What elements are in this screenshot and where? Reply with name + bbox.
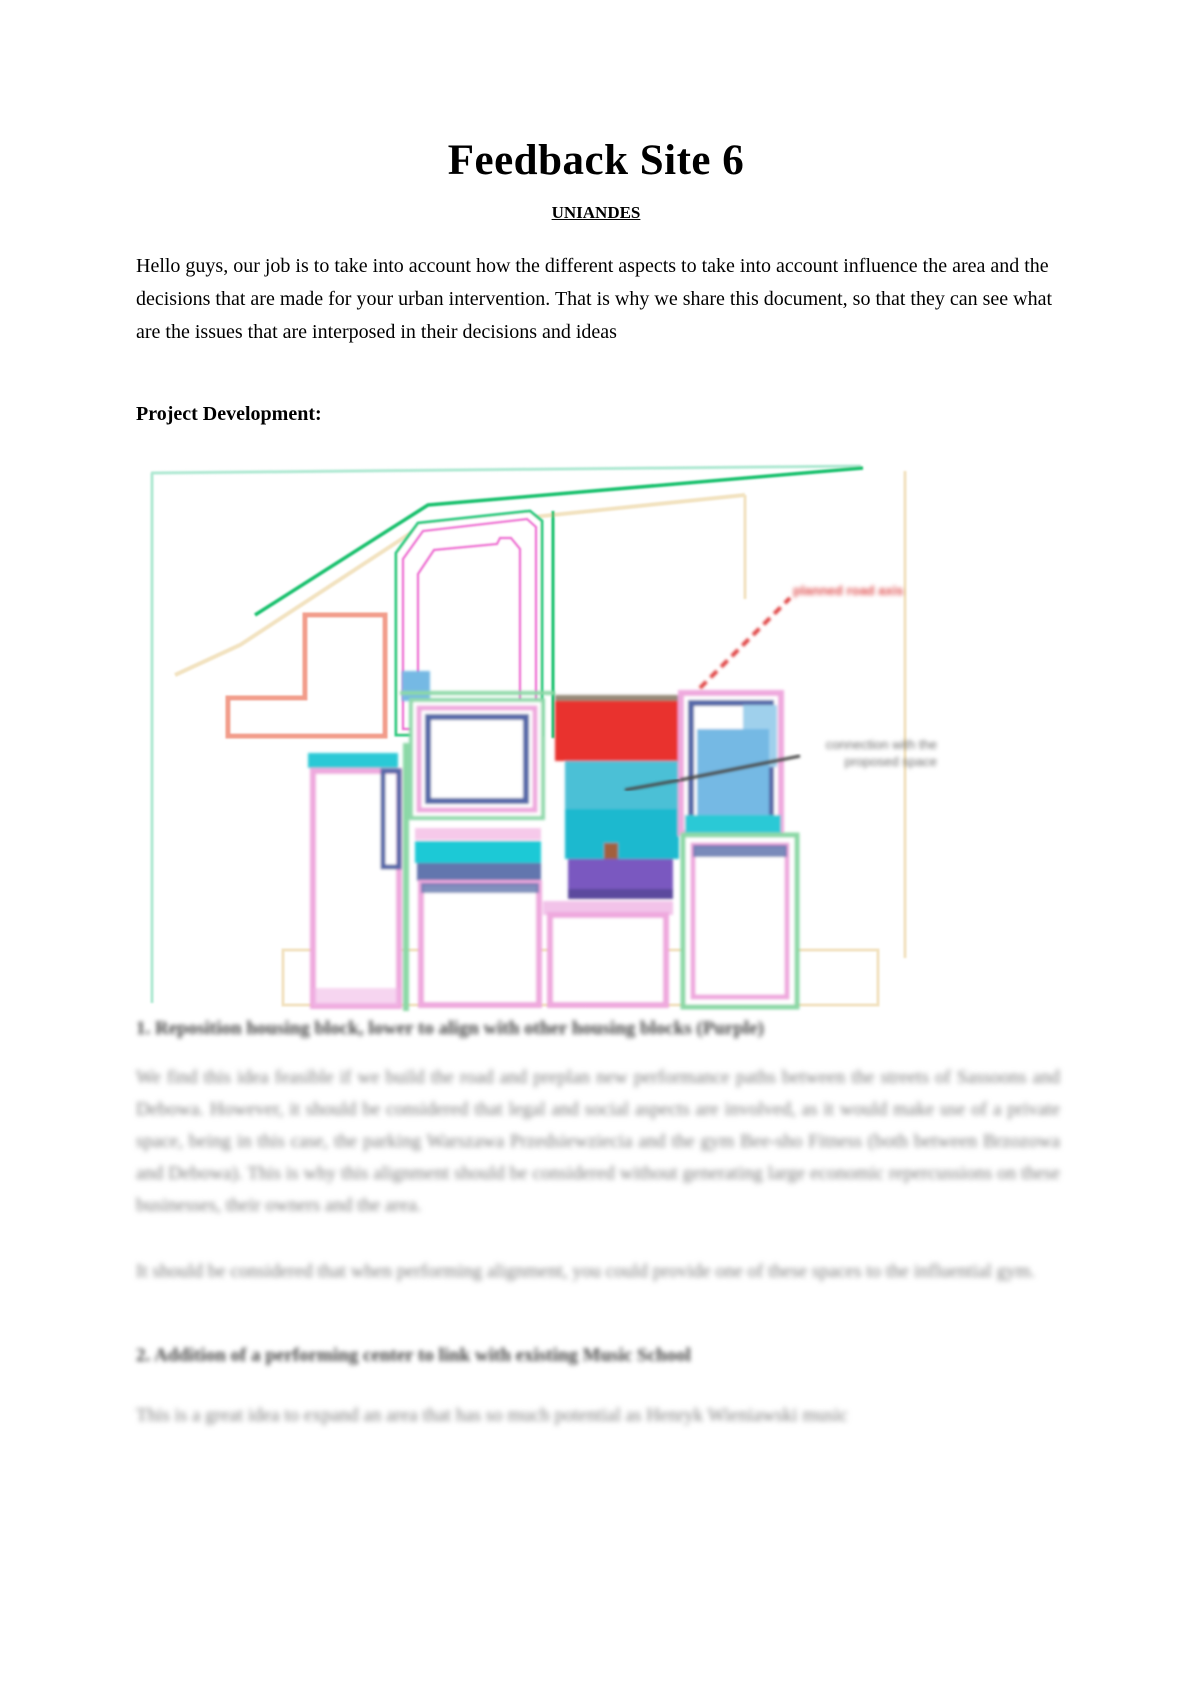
page-title: Feedback Site 6 — [0, 136, 1192, 185]
site-plan-image — [145, 443, 963, 1018]
feedback-paragraph-1-blurred: We find this idea feasible if we build t… — [136, 1062, 1060, 1222]
page-subtitle: UNIANDES — [0, 203, 1192, 223]
red-dashed-line — [700, 598, 790, 688]
salmon-parcel — [228, 615, 385, 736]
feedback-heading-1-blurred: 1. Reposition housing block, lower to al… — [136, 1018, 1060, 1040]
document-page: Feedback Site 6 UNIANDES Hello guys, our… — [0, 0, 1192, 1684]
feedback-paragraph-2-blurred: It should be considered that when perfor… — [136, 1256, 1060, 1288]
red-block — [555, 701, 681, 761]
feedback-paragraph-3-blurred: This is a great idea to expand an area t… — [136, 1400, 1060, 1432]
site-plan-figure: planned road axis connection with the pr… — [145, 443, 963, 1018]
intro-paragraph: Hello guys, our job is to take into acco… — [136, 250, 1060, 349]
brown-marker — [604, 843, 618, 859]
purple-block — [568, 859, 673, 889]
feedback-heading-2-blurred: 2. Addition of a performing center to li… — [136, 1345, 1060, 1367]
project-development-heading: Project Development: — [136, 403, 322, 426]
